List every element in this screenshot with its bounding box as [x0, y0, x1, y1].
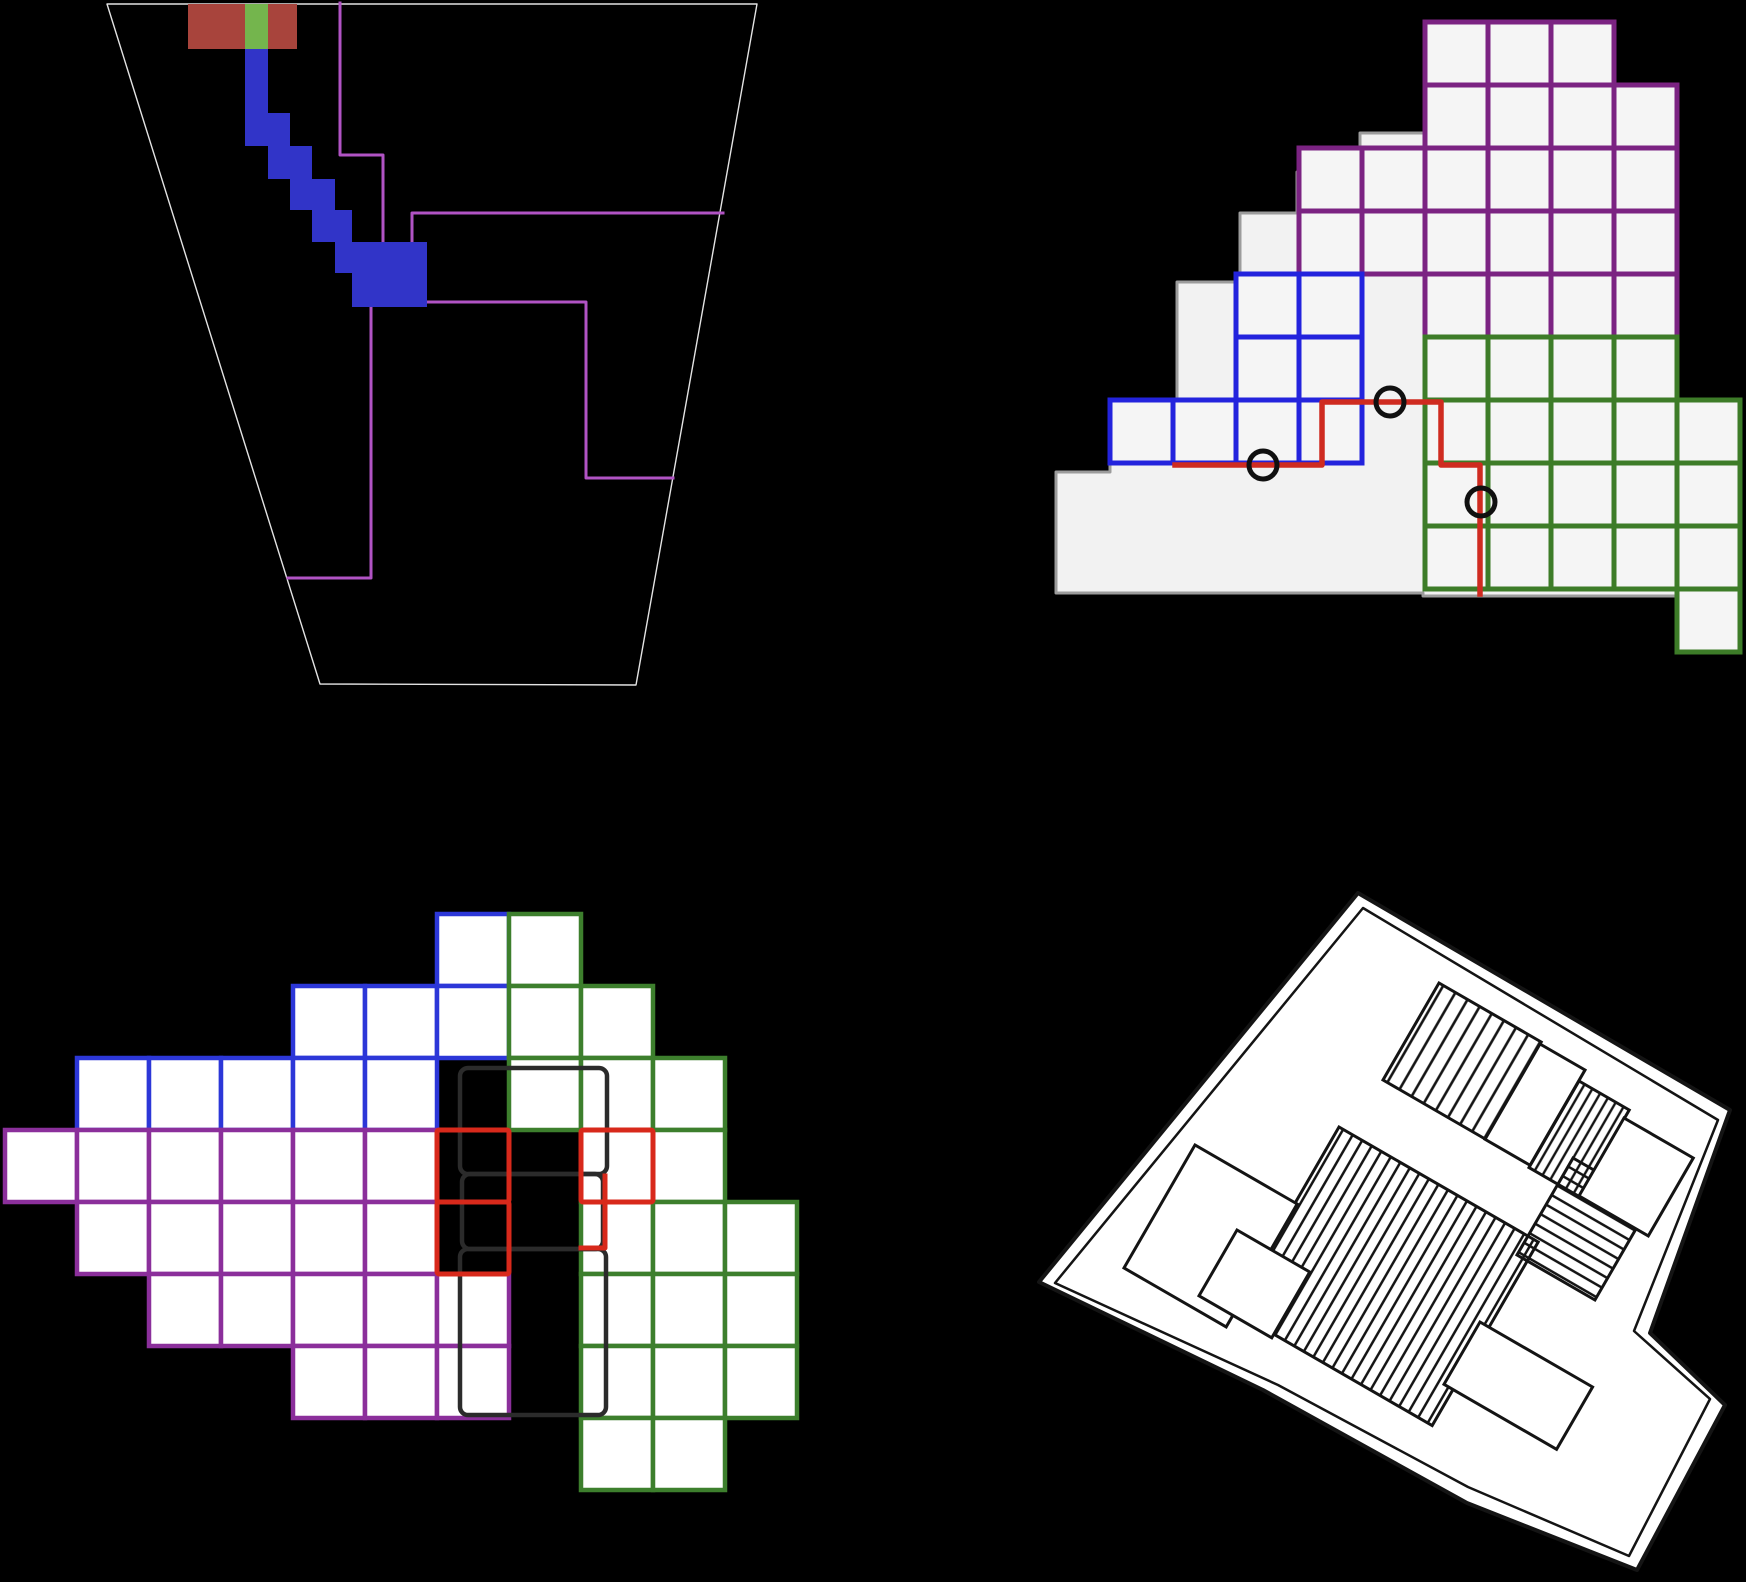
green-footprint-grid-cell [581, 1418, 653, 1490]
green-cell-grid-cell [1551, 337, 1614, 400]
purple-footprint-grid-cell [293, 1274, 365, 1346]
green-footprint-grid-cell [653, 1274, 725, 1346]
purple-cell-grid-cell [1425, 274, 1488, 337]
blue-cell-grid-cell [1110, 400, 1173, 463]
purple-cell-grid-cell [1425, 211, 1488, 274]
purple-cell-grid-cell [1362, 211, 1425, 274]
blue-footprint-grid-cell [365, 986, 437, 1058]
purple-footprint-grid-cell [437, 1274, 509, 1346]
blue-path-segment [268, 113, 290, 146]
green-cell-grid-cell [1551, 526, 1614, 589]
purple-footprint-grid-cell [77, 1202, 149, 1274]
blue-path-segment [245, 49, 268, 146]
purple-cell-grid-cell [1614, 274, 1677, 337]
purple-cell-grid-cell [1299, 148, 1362, 211]
green-cell-grid-cell [1677, 589, 1740, 652]
purple-footprint-grid-cell [293, 1346, 365, 1418]
purple-footprint-grid-cell [293, 1202, 365, 1274]
green-cell-grid-cell [1488, 337, 1551, 400]
purple-cell-grid-cell [1488, 148, 1551, 211]
purple-footprint-grid-cell [5, 1130, 77, 1202]
green-cell-grid-cell [1614, 337, 1677, 400]
green-footprint-grid-cell [725, 1346, 797, 1418]
purple-cell-grid-cell [1488, 274, 1551, 337]
four-panel-coverage-figure [0, 0, 1746, 1582]
purple-footprint-grid-cell [149, 1202, 221, 1274]
blue-cell-grid-cell [1299, 274, 1362, 337]
blue-cell-grid-cell [1236, 337, 1299, 400]
blue-footprint-grid-cell [437, 914, 509, 986]
purple-cell-grid-cell [1551, 274, 1614, 337]
green-cell-grid-cell [1551, 400, 1614, 463]
green-footprint-grid-cell [725, 1274, 797, 1346]
figure-canvas [0, 0, 1746, 1582]
purple-footprint-grid-cell [365, 1130, 437, 1202]
green-cell-grid-cell [1677, 463, 1740, 526]
blue-footprint-grid-cell [293, 986, 365, 1058]
purple-cell-grid-cell [1425, 22, 1488, 85]
purple-footprint-grid-cell [221, 1202, 293, 1274]
green-footprint-grid-cell [653, 1130, 725, 1202]
purple-cell-grid-cell [1362, 148, 1425, 211]
blue-cell-grid-cell [1173, 400, 1236, 463]
purple-footprint-grid-cell [437, 1346, 509, 1418]
blue-footprint-grid-cell [437, 986, 509, 1058]
blue-footprint-grid-cell [365, 1058, 437, 1130]
purple-cell-grid-cell [1614, 148, 1677, 211]
purple-cell-grid-cell [1614, 85, 1677, 148]
purple-cell-grid-cell [1488, 211, 1551, 274]
green-cell-grid-cell [1677, 526, 1740, 589]
purple-footprint-grid-cell [149, 1274, 221, 1346]
green-cell-grid-cell [1488, 400, 1551, 463]
purple-footprint-grid-cell [365, 1274, 437, 1346]
purple-cell-grid-cell [1551, 85, 1614, 148]
blue-footprint-grid-cell [149, 1058, 221, 1130]
purple-cell-grid-cell [1551, 148, 1614, 211]
start-cell-green [245, 4, 268, 49]
green-footprint-grid-cell [581, 1346, 653, 1418]
purple-footprint-grid-cell [365, 1346, 437, 1418]
blue-path-segment [380, 242, 427, 307]
green-cell-grid-cell [1488, 463, 1551, 526]
green-cell-grid-cell [1614, 463, 1677, 526]
green-footprint-grid-cell [581, 1274, 653, 1346]
green-cell-grid-cell [1551, 463, 1614, 526]
blue-footprint-grid-cell [293, 1058, 365, 1130]
green-footprint-grid-cell [653, 1418, 725, 1490]
green-footprint-grid-cell [725, 1202, 797, 1274]
purple-footprint-grid-cell [365, 1202, 437, 1274]
blue-path-segment [312, 210, 352, 242]
green-cell-grid-cell [1425, 337, 1488, 400]
blue-cell-grid-cell [1236, 274, 1299, 337]
start-cell-red-right [268, 4, 297, 49]
green-footprint-grid-cell [653, 1346, 725, 1418]
green-footprint-grid-cell [653, 1202, 725, 1274]
purple-cell-grid-cell [1425, 85, 1488, 148]
purple-cell-grid-cell [1299, 211, 1362, 274]
start-cell-red-left [188, 4, 245, 49]
blue-cell-grid-cell [1299, 400, 1362, 463]
green-footprint-grid-cell [653, 1058, 725, 1130]
purple-footprint-grid-cell [77, 1130, 149, 1202]
green-footprint-grid-cell [581, 986, 653, 1058]
green-footprint-grid-cell [509, 914, 581, 986]
green-footprint-grid-cell [581, 1202, 653, 1274]
green-cell-grid-cell [1488, 526, 1551, 589]
blue-path-segment [290, 179, 335, 210]
green-cell-grid-cell [1677, 400, 1740, 463]
blue-footprint-grid-cell [77, 1058, 149, 1130]
blue-path-segment [268, 146, 312, 179]
purple-cell-grid-cell [1425, 148, 1488, 211]
blue-cell-grid-cell [1299, 337, 1362, 400]
purple-cell-grid-cell [1488, 85, 1551, 148]
purple-cell-grid-cell [1551, 22, 1614, 85]
purple-cell-grid-cell [1488, 22, 1551, 85]
purple-footprint-grid-cell [293, 1130, 365, 1202]
purple-footprint-grid-cell [221, 1130, 293, 1202]
green-cell-grid-cell [1614, 526, 1677, 589]
green-footprint-grid-cell [509, 986, 581, 1058]
blue-footprint-grid-cell [221, 1058, 293, 1130]
purple-footprint-grid-cell [149, 1130, 221, 1202]
purple-footprint-grid-cell [221, 1274, 293, 1346]
green-footprint-grid-cell [581, 1130, 653, 1202]
purple-cell-grid-cell [1614, 211, 1677, 274]
purple-cell-grid-cell [1551, 211, 1614, 274]
green-cell-grid-cell [1614, 400, 1677, 463]
green-cell-grid-cell [1425, 400, 1488, 463]
